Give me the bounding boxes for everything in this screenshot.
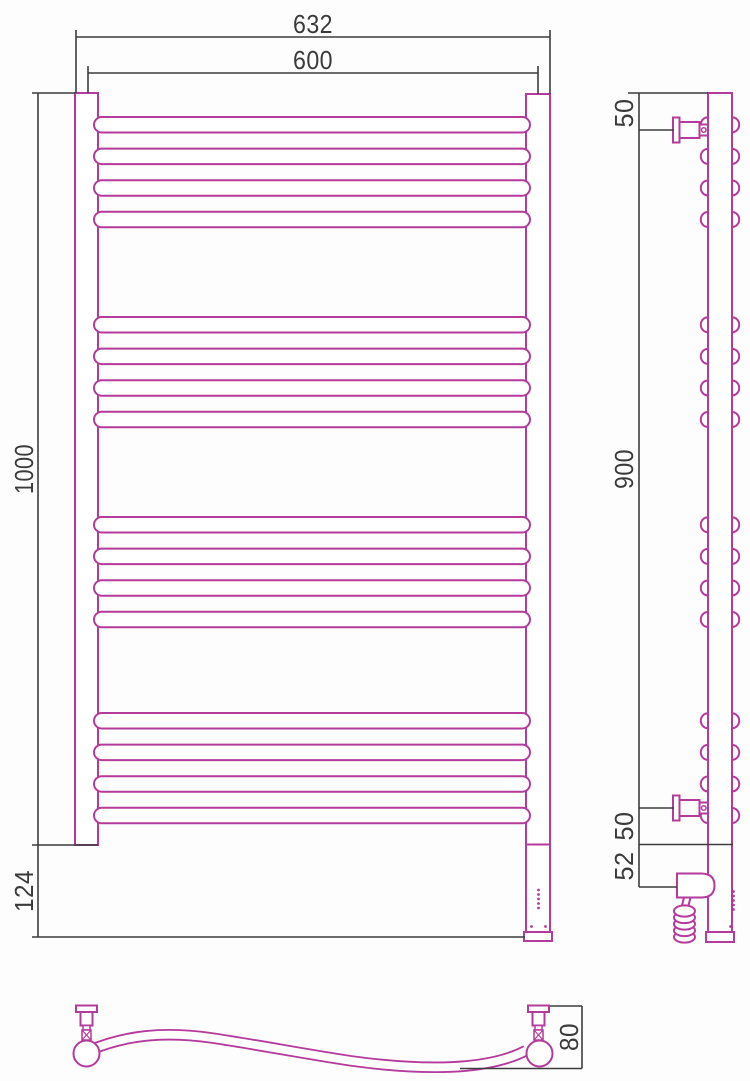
rung-end-right — [732, 580, 739, 595]
rung — [94, 412, 530, 428]
valve-body — [680, 122, 700, 138]
vent-dot — [732, 904, 735, 907]
left-tube-section — [74, 1041, 100, 1067]
rung — [94, 517, 530, 533]
rungs — [94, 117, 530, 823]
dim-width-centers: 600 — [293, 45, 333, 75]
valve-body — [81, 1012, 93, 1026]
rung — [94, 776, 530, 792]
dim-depth: 80 — [554, 1023, 584, 1051]
power-cable-coil — [674, 905, 695, 942]
vent-dot — [732, 899, 735, 902]
rung-end-right — [732, 745, 739, 760]
dim-height-body: 1000 — [9, 444, 39, 494]
rung — [94, 349, 530, 365]
rung-end-left — [701, 180, 708, 195]
rung-end-right — [732, 713, 739, 728]
rung-end-right — [732, 808, 739, 823]
vent-dot — [537, 889, 540, 892]
rung — [94, 808, 530, 824]
mounting-valve-bottom — [673, 796, 708, 821]
rung-end-right — [732, 180, 739, 195]
rung-end-left — [701, 776, 708, 791]
vent-dot — [537, 898, 540, 901]
rung-end-left — [701, 349, 708, 364]
valve-body — [680, 800, 700, 816]
plan-view — [74, 1006, 583, 1069]
rung-end-left — [701, 745, 708, 760]
rung-end-left — [701, 612, 708, 627]
vent-dot — [537, 893, 540, 896]
rung — [94, 745, 530, 761]
heating-element — [677, 874, 715, 898]
rung — [94, 180, 530, 196]
rung — [94, 380, 530, 396]
rung — [94, 580, 530, 596]
rung-end-right — [732, 117, 739, 132]
rung-end-right — [732, 349, 739, 364]
rung-end-right — [732, 549, 739, 564]
plan-valve-left — [76, 1006, 97, 1041]
side-tube — [708, 93, 732, 932]
valve-body — [533, 1012, 545, 1026]
rung-end-right — [732, 149, 739, 164]
rung — [94, 317, 530, 333]
vent-dot — [544, 925, 547, 928]
rung-end-right — [732, 380, 739, 395]
vent-dot — [729, 925, 732, 928]
rung — [94, 117, 530, 133]
drawing-page: 632 600 1000 124 — [0, 0, 750, 1081]
towel-rail-drawing: 632 600 1000 124 — [0, 0, 750, 1081]
dim-top-mount-offset: 50 — [609, 99, 639, 128]
rung-end-right — [732, 776, 739, 791]
rung-end-left — [701, 517, 708, 532]
vent-dot — [530, 925, 533, 928]
rung — [94, 612, 530, 628]
side-tube-collar — [706, 932, 734, 942]
dim-heater-offset: 52 — [609, 852, 639, 881]
rung-end-left — [701, 212, 708, 227]
dim-mount-span: 900 — [609, 449, 639, 489]
rung-end-right — [732, 517, 739, 532]
rung-end-left — [701, 412, 708, 427]
dim-width-overall: 632 — [293, 9, 333, 39]
vent-dot — [732, 895, 735, 898]
dim-bottom-mount-offset: 50 — [609, 812, 639, 841]
rung — [94, 549, 530, 565]
rung-end-left — [701, 317, 708, 332]
rung-end-left — [701, 713, 708, 728]
rung-end-left — [701, 380, 708, 395]
front-view — [75, 93, 552, 941]
right-rail-collar — [524, 932, 552, 941]
front-dimensions — [32, 30, 550, 937]
right-tube-section — [527, 1041, 553, 1067]
plan-valve-right — [528, 1006, 549, 1041]
vent-dot — [537, 907, 540, 910]
rung-end-left — [701, 549, 708, 564]
rung-end-right — [732, 612, 739, 627]
vent-dot — [732, 890, 735, 893]
rung-end-right — [732, 212, 739, 227]
rung — [94, 149, 530, 165]
vent-dot — [537, 902, 540, 905]
rung — [94, 212, 530, 228]
coil-loop — [674, 905, 695, 916]
rung-end-right — [732, 412, 739, 427]
rung — [94, 713, 530, 729]
vent-dot — [732, 908, 735, 911]
rung-end-left — [701, 149, 708, 164]
rung-end-left — [701, 580, 708, 595]
dim-height-below: 124 — [9, 870, 39, 912]
side-view — [673, 93, 739, 943]
left-rail — [75, 93, 98, 845]
rung-end-right — [732, 317, 739, 332]
